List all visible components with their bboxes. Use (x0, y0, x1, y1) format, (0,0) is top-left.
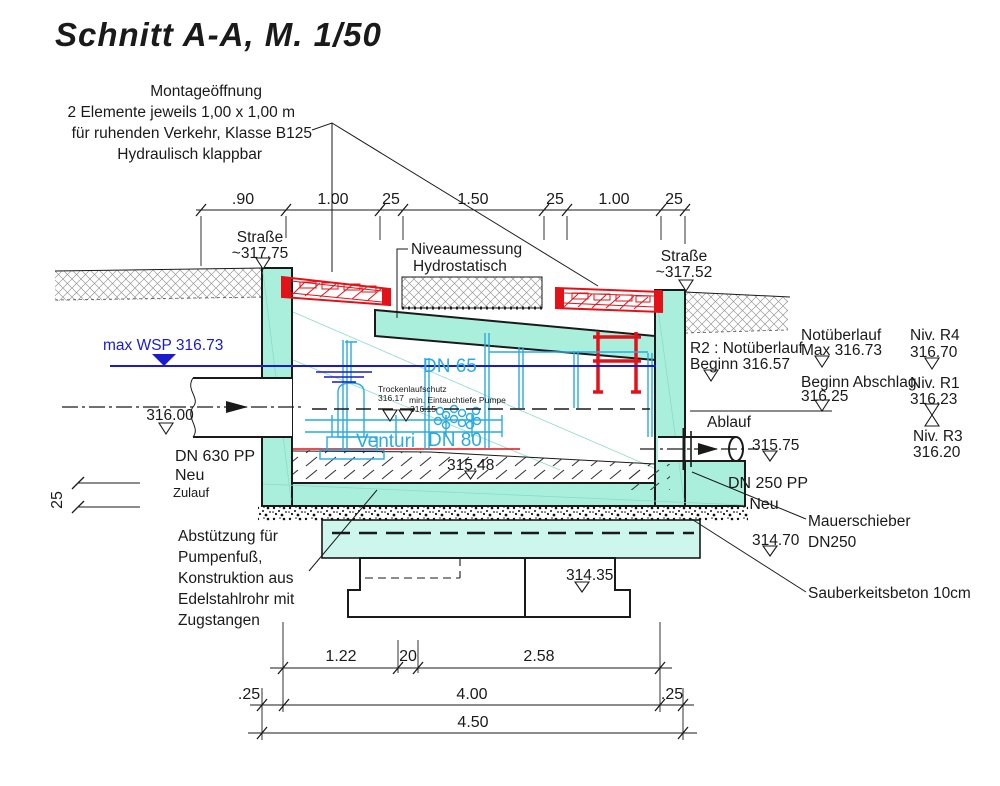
dim-top-3: 1.50 (457, 191, 488, 208)
note-montage-4: Hydraulisch klappbar (117, 146, 262, 163)
level-315-75: 315.75 (752, 437, 799, 454)
dim-top-5: 1.00 (598, 191, 629, 208)
dim-b3: 4.50 (457, 714, 488, 731)
inlet-label-3: Zulauf (173, 485, 210, 500)
dim-b1-2: 2.58 (523, 648, 554, 665)
sensor-pipe-1 (519, 347, 523, 408)
level-314-35: 314.35 (566, 567, 613, 584)
eintauch-level: 316.15 (410, 404, 436, 414)
abschlag-2: 316.25 (801, 388, 848, 405)
level-314-70: 314.70 (752, 532, 800, 549)
pump-body (338, 383, 364, 437)
dim-b2-0: .25 (238, 686, 260, 703)
dim-b1-1: 20 (399, 648, 417, 665)
mauerschieber-1: Mauerschieber (808, 513, 911, 530)
dn65-label: DN 65 (423, 356, 477, 377)
foundation-group (258, 506, 748, 617)
venturi-label: Venturi (356, 431, 415, 452)
dim-wall-25: 25 (49, 491, 66, 509)
dim-top-2: 25 (382, 191, 400, 208)
footing-left (348, 558, 525, 617)
section-drawing: Schnitt A-A, M. 1/50 (0, 0, 1000, 786)
abstuetzung-1: Abstützung für (178, 528, 278, 545)
dim-b2-1: 4.00 (456, 686, 487, 703)
marker-niv-r1-up (925, 415, 939, 426)
dn80-label: DN 80 (428, 430, 482, 451)
leader-sauberkeitsbeton (690, 518, 806, 592)
lean-concrete-layer (258, 506, 748, 521)
center-cover-fill (402, 277, 542, 308)
mauerschieber-2: DN250 (808, 534, 857, 551)
flap-right (556, 288, 662, 312)
riser-pipe-dn65 (485, 333, 489, 448)
strasse-right-label: Straße (661, 248, 708, 265)
abstuetzung-3: Konstruktion aus (178, 570, 294, 587)
lower-slab (322, 520, 700, 558)
sensor-pipe-2 (574, 351, 578, 408)
level-316-00: 316.00 (146, 407, 194, 424)
niv-r4-2: 316.70 (910, 344, 958, 361)
water-level-triangle (152, 354, 176, 366)
dim-b2-2: .25 (661, 686, 683, 703)
soil-left (55, 268, 262, 301)
note-montage-2: 2 Elemente jeweils 1,00 x 1,00 m (68, 104, 295, 121)
note-montage-1: Montageöffnung (150, 83, 262, 100)
dim-top-0: .90 (232, 191, 254, 208)
inlet-label-2: Neu (175, 467, 204, 484)
niv-r4-1: Niv. R4 (910, 327, 960, 344)
water-surface-symbol (316, 372, 372, 382)
r2-label-1: R2 : Notüberlauf (690, 340, 804, 357)
strasse-right-level: ~317.52 (656, 264, 712, 281)
max-wsp-label: max WSP 316.73 (103, 337, 223, 354)
outlet-label-1: DN 250 PP (728, 475, 808, 492)
notueberlauf-2: Max 316.73 (801, 342, 882, 359)
strasse-left-label: Straße (237, 229, 284, 246)
abstuetzung-2: Pumpenfuß, (178, 549, 262, 566)
dim-b1-0: 1.22 (325, 648, 356, 665)
floor-fill-right (630, 464, 670, 490)
drawing-sheet: Schnitt A-A, M. 1/50 (0, 0, 1000, 786)
page-title: Schnitt A-A, M. 1/50 (55, 16, 382, 53)
dim-top-6: 25 (665, 191, 683, 208)
r2-label-2: Beginn 316.57 (690, 356, 790, 373)
niv-r3-1: Niv. R3 (913, 428, 963, 445)
note-montage-3: für ruhenden Verkehr, Klasse B125 (72, 125, 312, 142)
flap-left (282, 277, 390, 305)
inlet-label-1: DN 630 PP (175, 448, 255, 465)
dim-top-4: 25 (546, 191, 564, 208)
riser-pipe-1 (343, 340, 347, 450)
soil-right (685, 292, 788, 333)
dimension-wall-25: 25 (49, 477, 140, 513)
abstuetzung-5: Zugstangen (178, 612, 260, 629)
dim-top-1: 1.00 (317, 191, 348, 208)
niveau-label-2: Hydrostatisch (413, 258, 507, 275)
outlet-label-2: Neu (749, 496, 778, 513)
niv-r3-2: 316.20 (913, 444, 961, 461)
dimension-bottom: 1.22 20 2.58 .25 4.00 .25 4.50 (238, 622, 697, 740)
strasse-left-level: ~317.75 (232, 245, 288, 262)
niv-r1-1: Niv. R1 (910, 375, 960, 392)
sauberkeitsbeton-label: Sauberkeitsbeton 10cm (808, 585, 971, 602)
niv-r1-2: 316.23 (910, 391, 957, 408)
abstuetzung-4: Edelstahlrohr mit (178, 591, 295, 608)
sohle-level: 315.48 (447, 457, 494, 474)
trocken-level: 316.17 (378, 393, 404, 403)
marker-316-00 (159, 423, 173, 434)
niveau-label-1: Niveaumessung (411, 241, 522, 258)
ablauf-label: Ablauf (707, 414, 752, 431)
